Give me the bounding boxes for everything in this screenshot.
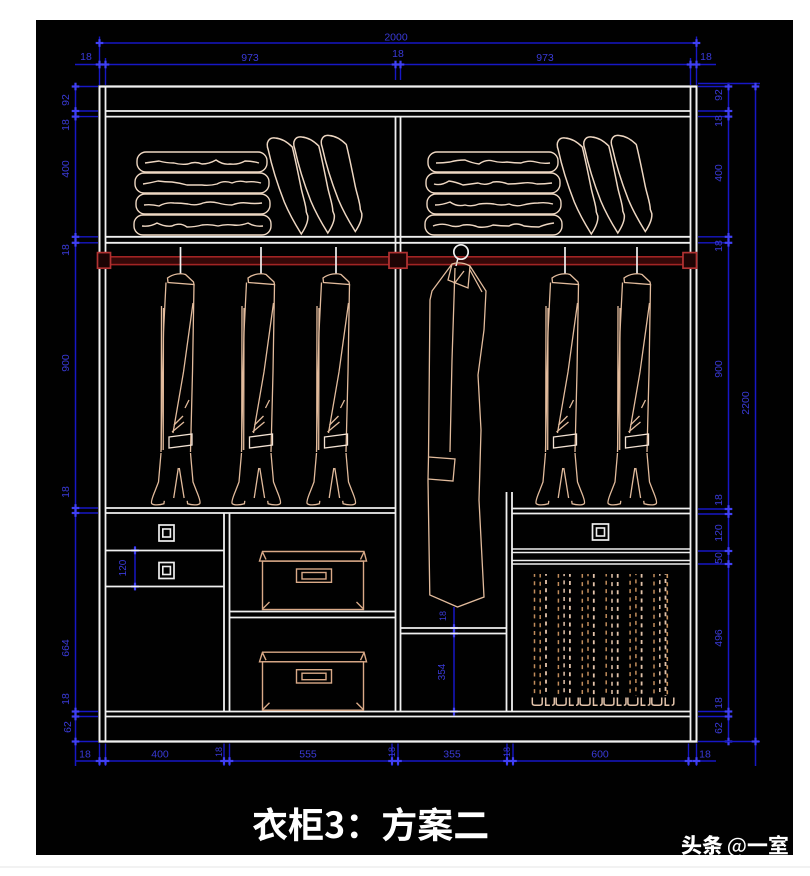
svg-text:18: 18 xyxy=(60,119,72,131)
svg-text:600: 600 xyxy=(591,749,609,761)
svg-text:2000: 2000 xyxy=(384,32,408,44)
svg-text:18: 18 xyxy=(80,51,92,63)
svg-text:400: 400 xyxy=(60,160,72,178)
svg-text:18: 18 xyxy=(79,749,91,761)
svg-text:92: 92 xyxy=(713,89,725,101)
svg-text:62: 62 xyxy=(62,721,74,733)
svg-text:2200: 2200 xyxy=(740,391,752,415)
svg-text:400: 400 xyxy=(151,749,169,761)
svg-text:18: 18 xyxy=(700,51,712,63)
svg-text:18: 18 xyxy=(713,240,725,252)
svg-text:62: 62 xyxy=(713,722,725,734)
svg-text:120: 120 xyxy=(118,559,129,576)
svg-text:973: 973 xyxy=(241,52,259,64)
svg-text:18: 18 xyxy=(502,747,512,757)
svg-text:555: 555 xyxy=(299,749,317,761)
svg-text:50: 50 xyxy=(713,552,725,564)
svg-text:18: 18 xyxy=(392,48,404,60)
svg-text:355: 355 xyxy=(443,749,461,761)
svg-text:18: 18 xyxy=(699,749,711,761)
svg-text:18: 18 xyxy=(713,697,725,709)
svg-text:900: 900 xyxy=(713,360,725,378)
svg-text:354: 354 xyxy=(437,663,448,680)
svg-text:18: 18 xyxy=(214,747,224,757)
svg-text:120: 120 xyxy=(713,524,725,542)
svg-text:400: 400 xyxy=(713,164,725,182)
svg-text:900: 900 xyxy=(60,354,72,372)
svg-text:664: 664 xyxy=(60,639,72,657)
svg-text:18: 18 xyxy=(60,486,72,498)
svg-text:18: 18 xyxy=(60,693,72,705)
svg-text:18: 18 xyxy=(713,115,725,127)
svg-text:92: 92 xyxy=(60,94,72,106)
svg-text:18: 18 xyxy=(438,611,448,621)
svg-text:496: 496 xyxy=(713,629,725,647)
svg-text:18: 18 xyxy=(60,244,72,256)
svg-text:18: 18 xyxy=(387,747,397,757)
svg-text:973: 973 xyxy=(536,52,554,64)
svg-text:18: 18 xyxy=(713,494,725,506)
